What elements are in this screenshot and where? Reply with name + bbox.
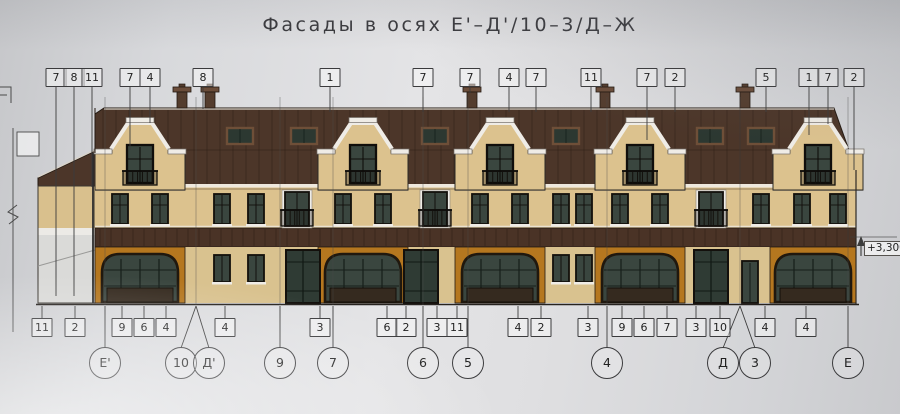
axis-circle: 5	[452, 347, 484, 379]
callout-box: 6	[134, 318, 155, 337]
arched-storefront-window	[462, 254, 538, 302]
callout-box: 6	[634, 318, 655, 337]
callout-box: 7	[120, 68, 141, 87]
callout-box: 7	[526, 68, 547, 87]
callout-box: 3	[686, 318, 707, 337]
callout-box: 7	[818, 68, 839, 87]
callout-box: 11	[32, 318, 53, 337]
axis-circle: Д'	[193, 347, 225, 379]
axis-circle: Д	[707, 347, 739, 379]
axis-circle: 3	[739, 347, 771, 379]
axis-circle: 9	[264, 347, 296, 379]
balcony-door	[280, 190, 314, 228]
callout-box: 4	[755, 318, 776, 337]
drawing-sheet: Фасады в осях Е'–Д'/10–3/Д–Ж	[0, 0, 900, 414]
callout-box: 4	[156, 318, 177, 337]
callout-box: 9	[612, 318, 633, 337]
callout-box: 2	[396, 318, 417, 337]
axis-circle: Е'	[89, 347, 121, 379]
callout-box: 3	[427, 318, 448, 337]
callout-box: 11	[82, 68, 103, 87]
arched-storefront-window	[775, 254, 851, 302]
axis-circle: Е	[832, 347, 864, 379]
arched-storefront-window	[602, 254, 678, 302]
chimney	[201, 84, 219, 108]
callout-box: 7	[657, 318, 678, 337]
callout-box: 2	[844, 68, 865, 87]
callout-box: 4	[796, 318, 817, 337]
callout-box: 4	[499, 68, 520, 87]
callout-box: 1	[799, 68, 820, 87]
callout-box: 5	[756, 68, 777, 87]
callout-box: 4	[140, 68, 161, 87]
callout-box: 7	[460, 68, 481, 87]
axis-circle: 7	[317, 347, 349, 379]
callout-box: 6	[377, 318, 398, 337]
callout-box: 4	[215, 318, 236, 337]
callout-box: 2	[531, 318, 552, 337]
callout-box: 1	[320, 68, 341, 87]
callout-box: 3	[578, 318, 599, 337]
left-annex	[38, 150, 95, 303]
arched-storefront-window	[325, 254, 401, 302]
callout-box: 3	[310, 318, 331, 337]
drawing-title: Фасады в осях Е'–Д'/10–3/Д–Ж	[0, 14, 900, 36]
elevation-mark: +3,300	[864, 241, 900, 256]
callout-box: 7	[637, 68, 658, 87]
chimney	[173, 84, 191, 108]
left-dimension-line	[8, 128, 39, 332]
callout-box: 4	[508, 318, 529, 337]
callout-box: 2	[65, 318, 86, 337]
callout-box: 9	[112, 318, 133, 337]
chimneys	[173, 84, 754, 108]
balcony-door	[694, 190, 728, 228]
callout-box: 11	[447, 318, 468, 337]
corner-fragment	[0, 87, 11, 103]
callout-box: 10	[710, 318, 731, 337]
callout-box: 8	[193, 68, 214, 87]
callout-box: 7	[413, 68, 434, 87]
chimney	[596, 84, 614, 108]
arched-storefront-window	[102, 254, 178, 302]
callout-box: 2	[665, 68, 686, 87]
callout-box: 11	[581, 68, 602, 87]
chimney	[463, 84, 481, 108]
axis-circle: 6	[407, 347, 439, 379]
cornice-band	[95, 228, 856, 247]
axis-circle: 4	[591, 347, 623, 379]
chimney	[736, 84, 754, 108]
